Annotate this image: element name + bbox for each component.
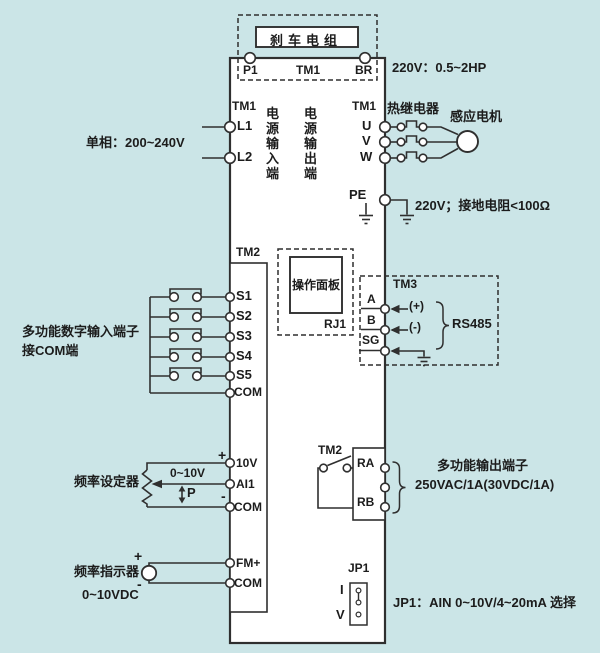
- tm3-label: TM3: [393, 278, 417, 291]
- power-input-group-label: 电源输入端: [264, 106, 281, 181]
- tm2-strip-label: TM2: [236, 246, 260, 259]
- terminal-acom-label: COM: [234, 501, 262, 514]
- rs485-plus-label: (+): [409, 300, 424, 313]
- rs485-bus-label: RS485: [452, 317, 492, 331]
- brake-box-label: 刹车电组: [256, 30, 356, 49]
- terminal-w-label: W: [360, 150, 372, 164]
- tm1-input-label: TM1: [232, 100, 256, 113]
- freq-indicator-minus-sign: -: [137, 577, 142, 592]
- rs485-minus-label: (-): [409, 321, 421, 334]
- tm1-top-label: TM1: [296, 64, 320, 77]
- terminal-l2-label: L2: [237, 150, 252, 164]
- motor-label: 感应电机: [450, 110, 502, 124]
- rj1-port-label: RJ1: [324, 318, 346, 331]
- terminal-br-label: BR: [355, 64, 372, 77]
- terminal-s1-label: S1: [236, 289, 252, 303]
- freq-indicator-label: 频率指示器: [74, 565, 139, 579]
- phase-note: 单相：200~240V: [86, 136, 185, 150]
- freq-setter-plus-sign: +: [218, 448, 226, 463]
- digital-input-note-2: 接COM端: [22, 344, 78, 358]
- terminal-sg-label: SG: [362, 334, 379, 347]
- inverter-wiring-diagram: 刹车电组 P1 TM1 BR 220V：0.5~2HP TM1 L1 L2 单相…: [0, 0, 600, 653]
- freq-setter-minus-sign: -: [221, 489, 226, 504]
- grounding-note: 220V；接地电阻<100Ω: [415, 199, 550, 213]
- terminal-fm-label: FM+: [236, 557, 260, 570]
- tm1-output-label: TM1: [352, 100, 376, 113]
- terminal-pe-label: PE: [349, 188, 366, 202]
- rating-note: 220V：0.5~2HP: [392, 61, 486, 75]
- rs485-brace: [436, 302, 449, 349]
- meter-icon: [142, 566, 156, 580]
- freq-setter-p-label: P: [187, 486, 196, 500]
- jp1-v-label: V: [336, 608, 345, 622]
- terminal-s2-label: S2: [236, 309, 252, 323]
- power-output-group-label: 电源输出端: [302, 106, 319, 181]
- terminal-b-label: B: [367, 314, 376, 327]
- tm2-relay-label: TM2: [318, 444, 342, 457]
- freq-indicator-wires: [142, 559, 235, 588]
- terminal-rb-label: RB: [357, 496, 374, 509]
- freq-indicator-range-label: 0~10VDC: [82, 588, 139, 602]
- terminal-v-label: V: [362, 134, 371, 148]
- terminal-ai1-label: AI1: [236, 478, 255, 491]
- power-output-wires: [380, 121, 478, 163]
- jp1-label: JP1: [348, 562, 369, 575]
- relay-brace: [393, 462, 406, 513]
- terminal-s4-label: S4: [236, 349, 252, 363]
- jp1-i-label: I: [340, 583, 344, 597]
- operation-panel-label: 操作面板: [290, 279, 342, 292]
- motor-icon: [457, 131, 478, 152]
- digital-input-wires: [150, 289, 234, 397]
- jp1-jumper: [350, 583, 367, 625]
- terminal-s5-label: S5: [236, 368, 252, 382]
- terminal-p1-label: P1: [243, 64, 258, 77]
- freq-setter-range-label: 0~10V: [170, 467, 205, 480]
- digital-input-note-1: 多功能数字输入端子: [22, 325, 139, 339]
- relay-output-note-1: 多功能输出端子: [437, 459, 528, 473]
- terminal-a-label: A: [367, 293, 376, 306]
- terminal-l1-label: L1: [237, 119, 252, 133]
- jp1-note: JP1：AIN 0~10V/4~20mA 选择: [393, 596, 576, 610]
- terminal-10v-label: 10V: [236, 457, 257, 470]
- freq-indicator-plus-sign: +: [134, 549, 142, 564]
- thermal-relay-label: 热继电器: [387, 102, 439, 116]
- terminal-com-label: COM: [234, 386, 262, 399]
- terminal-s3-label: S3: [236, 329, 252, 343]
- terminal-fcom-label: COM: [234, 577, 262, 590]
- terminal-ra-label: RA: [357, 457, 374, 470]
- relay-output-note-2: 250VAC/1A(30VDC/1A): [415, 478, 554, 492]
- freq-setter-label: 频率设定器: [74, 475, 139, 489]
- terminal-u-label: U: [362, 119, 371, 133]
